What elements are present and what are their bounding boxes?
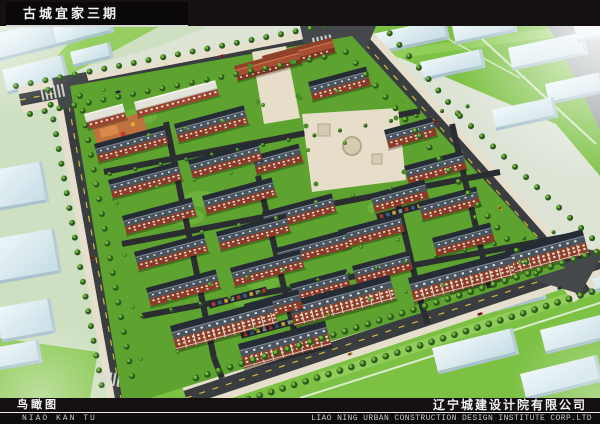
aerial-rendering xyxy=(0,26,600,398)
aerial-rendering-canvas xyxy=(0,26,600,398)
title-banner: 古城宜家三期 xyxy=(6,2,188,27)
titleblock-row-sub: NIAO KAN TU LIAO NING URBAN CONSTRUCTION… xyxy=(0,413,600,424)
project-title: 古城宜家三期 xyxy=(6,2,188,25)
company-name-cn: 辽宁城建设计院有限公司 xyxy=(433,398,587,412)
company-name-en: LIAO NING URBAN CONSTRUCTION DESIGN INST… xyxy=(311,413,592,424)
title-banner-strip: 古城宜家三期 xyxy=(0,0,600,26)
drawing-name-pinyin: NIAO KAN TU xyxy=(22,413,97,424)
presentation-sheet: 古城宜家三期 鸟瞰图 辽宁城建设计院有限公司 NIAO KAN TU LIAO … xyxy=(0,0,600,424)
titleblock-row-main: 鸟瞰图 辽宁城建设计院有限公司 xyxy=(0,398,600,412)
drawing-name-cn: 鸟瞰图 xyxy=(17,398,59,412)
